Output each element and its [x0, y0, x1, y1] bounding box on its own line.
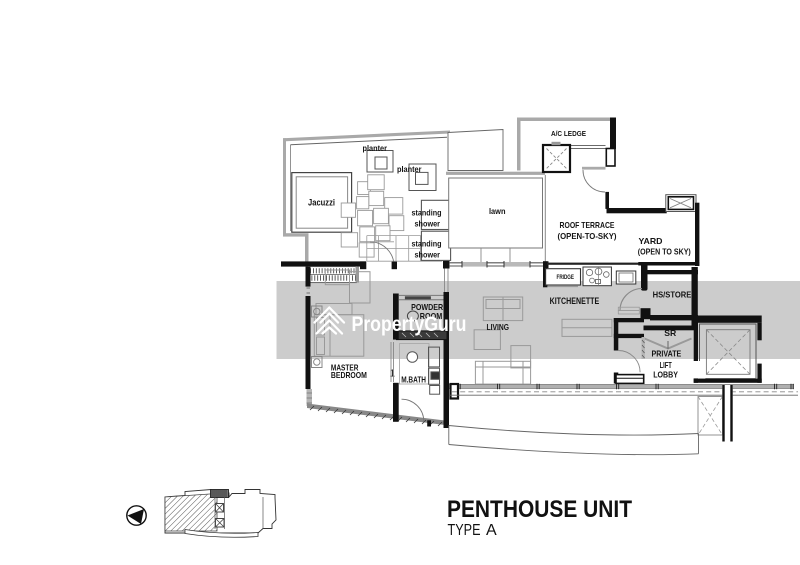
svg-text:lawn: lawn: [489, 206, 506, 216]
svg-text:YARD: YARD: [639, 236, 663, 246]
svg-text:ROOF TERRACE: ROOF TERRACE: [560, 220, 615, 230]
svg-text:FRIDGE: FRIDGE: [557, 275, 575, 281]
svg-text:SR: SR: [664, 328, 676, 338]
svg-text:A: A: [486, 522, 497, 539]
svg-text:(OPEN-TO-SKY): (OPEN-TO-SKY): [558, 231, 617, 241]
svg-text:KITCHENETTE: KITCHENETTE: [550, 296, 600, 306]
svg-text:shower: shower: [415, 250, 441, 260]
svg-text:LOBBY: LOBBY: [653, 369, 678, 379]
svg-text:planter: planter: [363, 143, 388, 153]
svg-text:HS/STORE: HS/STORE: [653, 289, 692, 299]
svg-text:PRIVATE: PRIVATE: [652, 348, 682, 358]
svg-text:BEDROOM: BEDROOM: [331, 370, 367, 380]
svg-text:planter: planter: [397, 164, 422, 174]
svg-text:shower: shower: [415, 219, 441, 229]
svg-text:M.BATH: M.BATH: [401, 374, 426, 384]
svg-text:A/C LEDGE: A/C LEDGE: [551, 129, 586, 138]
svg-text:standing: standing: [412, 208, 442, 218]
svg-text:PropertyGuru: PropertyGuru: [352, 312, 467, 336]
svg-text:TYPE: TYPE: [448, 522, 481, 539]
svg-text:1: 1: [390, 369, 396, 380]
svg-text:PENTHOUSE UNIT: PENTHOUSE UNIT: [447, 496, 632, 523]
svg-text:LIVING: LIVING: [487, 322, 510, 332]
svg-text:Jacuzzi: Jacuzzi: [308, 198, 335, 208]
svg-text:standing: standing: [412, 239, 442, 249]
svg-text:(OPEN TO SKY): (OPEN TO SKY): [638, 247, 691, 257]
